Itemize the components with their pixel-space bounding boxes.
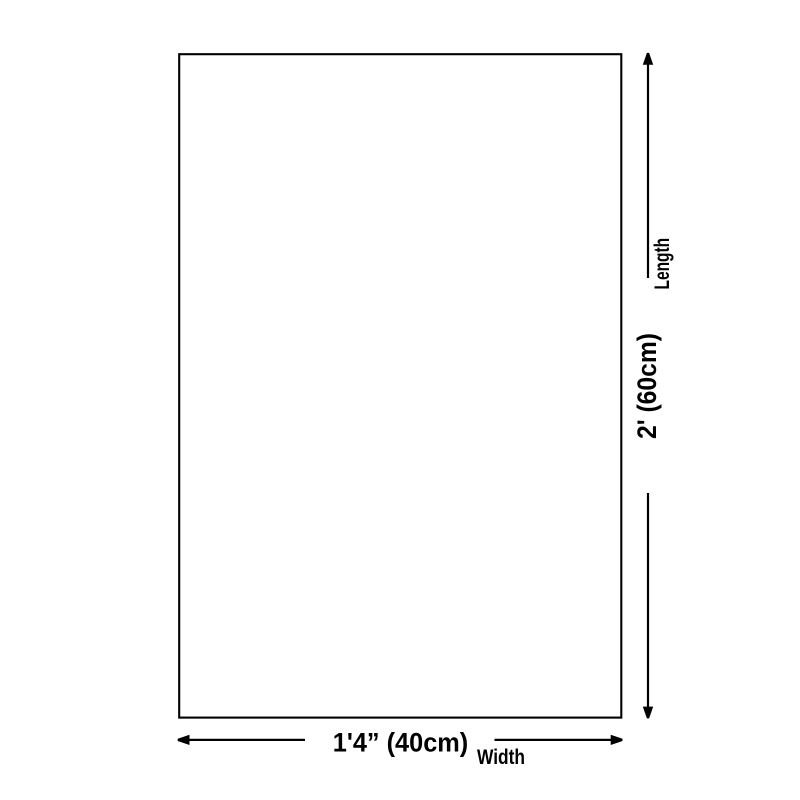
svg-text:Width: Width (477, 746, 525, 769)
svg-text:Length: Length (651, 238, 674, 290)
svg-text:1'4” (40cm): 1'4” (40cm) (333, 728, 469, 758)
svg-text:2' (60cm): 2' (60cm) (632, 333, 662, 439)
